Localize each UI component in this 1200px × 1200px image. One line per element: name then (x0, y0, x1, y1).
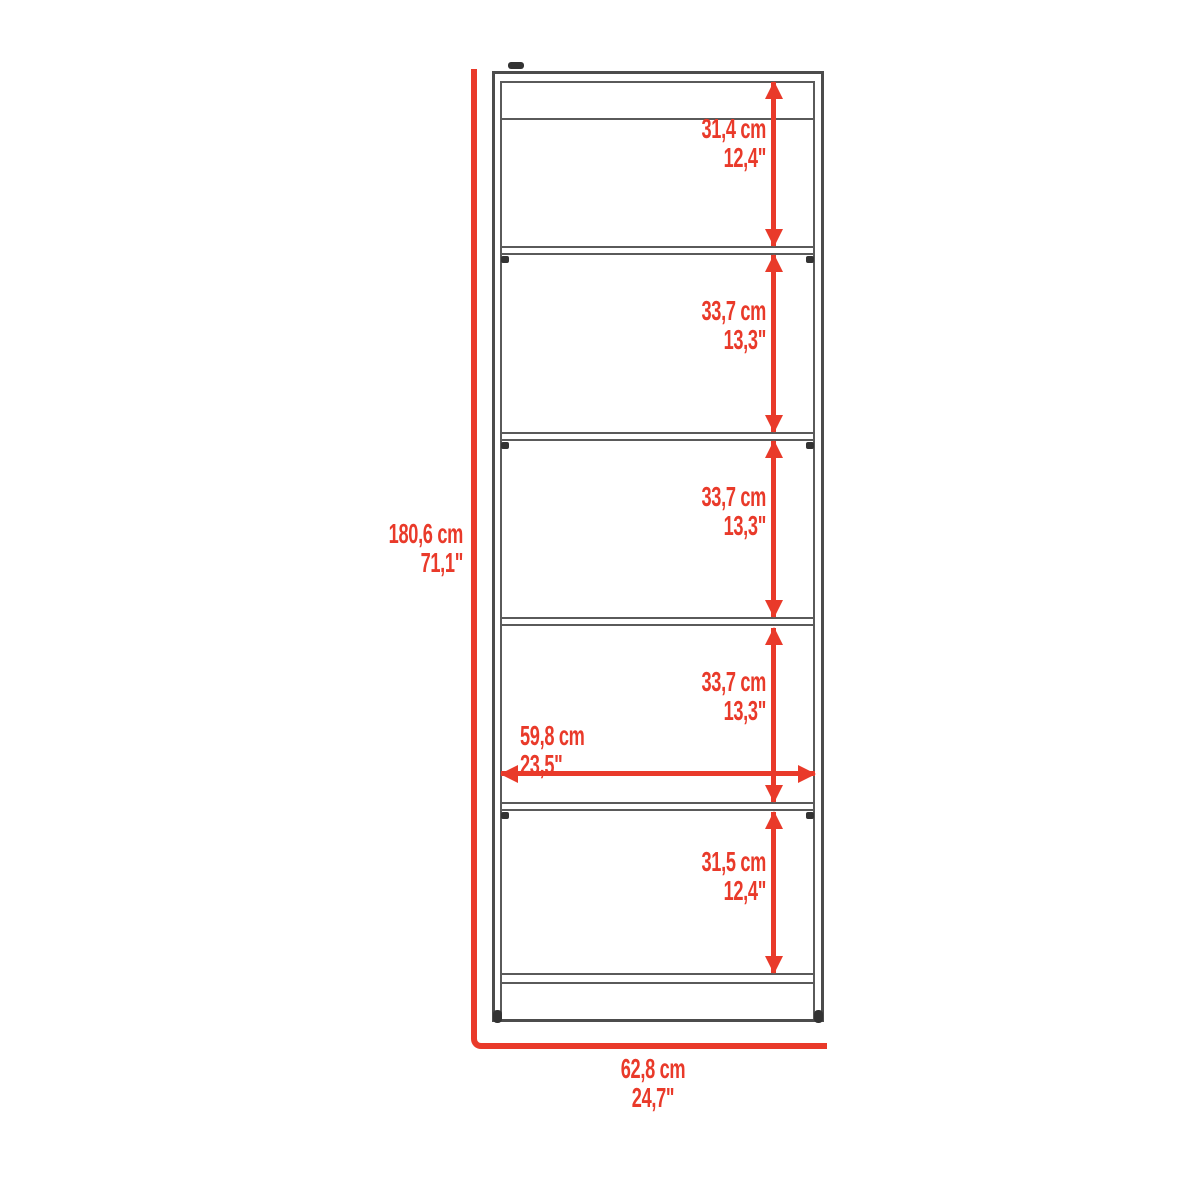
arrow-up-icon (765, 254, 783, 272)
section-1-dimension-line (771, 82, 776, 246)
section-2-label: 33,7 cm 13,3" (623, 296, 766, 354)
overall-width-cm: 62,8 cm (582, 1054, 725, 1083)
overall-height-label: 180,6 cm 71,1" (320, 519, 463, 577)
section-3-dimension-line (771, 441, 776, 617)
section-1-cm: 31,4 cm (623, 114, 766, 143)
interior-width-cm: 59,8 cm (520, 721, 663, 750)
section-5-dimension-line (771, 812, 776, 973)
section-2-dimension-line (771, 255, 776, 432)
section-2-in: 13,3" (623, 325, 766, 354)
arrow-up-icon (765, 627, 783, 645)
overall-height-in: 71,1" (320, 548, 463, 577)
section-2-cm: 33,7 cm (623, 296, 766, 325)
section-4-cm: 33,7 cm (623, 667, 766, 696)
overall-width-in: 24,7" (582, 1083, 725, 1112)
section-4-label: 33,7 cm 13,3" (623, 667, 766, 725)
arrow-left-icon (500, 765, 518, 783)
section-5-in: 12,4" (623, 876, 766, 905)
section-1-in: 12,4" (623, 143, 766, 172)
section-3-label: 33,7 cm 13,3" (623, 482, 766, 540)
bookcase-dimension-diagram: 180,6 cm 71,1" 62,8 cm 24,7" 31,4 cm 12,… (0, 0, 1200, 1200)
section-1-label: 31,4 cm 12,4" (623, 114, 766, 172)
section-3-cm: 33,7 cm (623, 482, 766, 511)
overall-height-cm: 180,6 cm (320, 519, 463, 548)
top-edge-detail (508, 62, 524, 69)
interior-width-in: 23,5" (520, 750, 663, 779)
arrow-down-icon (765, 785, 783, 803)
arrow-up-icon (765, 440, 783, 458)
arrow-down-icon (765, 229, 783, 247)
arrow-right-icon (798, 765, 816, 783)
arrow-down-icon (765, 600, 783, 618)
arrow-up-icon (765, 81, 783, 99)
section-3-in: 13,3" (623, 511, 766, 540)
interior-width-label: 59,8 cm 23,5" (520, 721, 663, 779)
overall-width-label: 62,8 cm 24,7" (582, 1054, 725, 1112)
section-5-cm: 31,5 cm (623, 847, 766, 876)
section-5-label: 31,5 cm 12,4" (623, 847, 766, 905)
arrow-down-icon (765, 415, 783, 433)
arrow-up-icon (765, 811, 783, 829)
arrow-down-icon (765, 956, 783, 974)
